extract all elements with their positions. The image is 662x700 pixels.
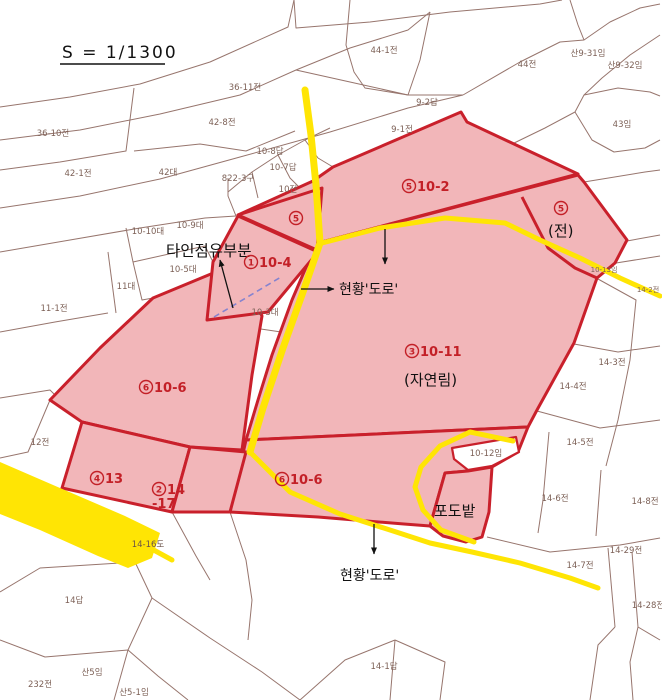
lot-label: 36-10전 bbox=[37, 128, 70, 139]
scale-label: S = 1/1300 bbox=[62, 43, 178, 63]
lot-label: 232전 bbox=[28, 679, 52, 690]
lot-label: 10-13임 bbox=[591, 266, 618, 274]
highlight-label-10-6-upper: 6 10-6 bbox=[140, 381, 187, 397]
lot-label: 9-2답 bbox=[416, 97, 438, 108]
lot-label: 12전 bbox=[31, 437, 50, 448]
svg-text:10-4: 10-4 bbox=[259, 256, 292, 271]
occupied-label: 타인점유부분 bbox=[166, 242, 252, 260]
lot-label: 14-16도 bbox=[132, 540, 165, 550]
lot-label: 822-3구 bbox=[222, 174, 255, 184]
svg-text:6: 6 bbox=[279, 476, 285, 486]
lot-label: 14-6전 bbox=[541, 493, 568, 504]
svg-text:2: 2 bbox=[156, 486, 162, 496]
natural-forest-label: (자연림) bbox=[404, 371, 457, 389]
lot-label: 10-5대 bbox=[169, 265, 196, 275]
lot-label: 43임 bbox=[613, 119, 632, 130]
lot-label: 44전 bbox=[518, 59, 537, 70]
lot-label: 14-4전 bbox=[559, 381, 586, 392]
vineyard-label: 포도밭 bbox=[434, 502, 476, 520]
highlight-label-10-2: 5 10-2 bbox=[403, 180, 450, 196]
cadastral-map: S = 1/1300 타인점유부분 현황'도로' 현황'도로' (자연림) (전… bbox=[0, 0, 662, 700]
highlight-label-10-4: 1 10-4 bbox=[245, 256, 292, 272]
svg-text:5: 5 bbox=[293, 215, 299, 225]
highlight-parcel-layer bbox=[50, 112, 627, 542]
lot-label: 42-8전 bbox=[208, 117, 235, 128]
lot-label: 14-3전 bbox=[598, 357, 625, 368]
svg-text:10-2: 10-2 bbox=[417, 180, 450, 195]
svg-text:3: 3 bbox=[409, 348, 415, 358]
svg-text:10-6: 10-6 bbox=[290, 473, 323, 488]
lot-label: 10-12임 bbox=[470, 448, 503, 459]
lot-label: 9-1전 bbox=[391, 124, 413, 135]
svg-text:1: 1 bbox=[248, 259, 254, 269]
svg-text:-17: -17 bbox=[152, 497, 176, 512]
svg-text:5: 5 bbox=[406, 183, 412, 193]
svg-text:10-11: 10-11 bbox=[420, 345, 462, 360]
highlight-label-13: 4 13 bbox=[91, 472, 124, 488]
lot-label: 14-8전 bbox=[631, 496, 658, 507]
lot-label: 10-7답 bbox=[269, 162, 296, 173]
highlight-label-10-6-lower: 6 10-6 bbox=[276, 473, 323, 489]
lot-label: 44-1전 bbox=[370, 45, 397, 56]
field-label: (전) bbox=[548, 222, 574, 240]
lot-label: 10-9대 bbox=[176, 221, 203, 231]
lot-label: 10-8답 bbox=[256, 146, 283, 157]
lot-label: 36-11전 bbox=[229, 82, 262, 93]
lot-label: 산9-32임 bbox=[608, 60, 643, 71]
lot-label: 14-1답 bbox=[370, 661, 397, 672]
svg-text:14: 14 bbox=[167, 483, 185, 498]
lot-label: 10-3대 bbox=[251, 308, 278, 318]
road-status-label-bottom: 현황'도로' bbox=[340, 568, 399, 584]
lot-label: 42대 bbox=[159, 168, 178, 178]
lot-label: 42-1전 bbox=[64, 168, 91, 179]
svg-text:13: 13 bbox=[105, 472, 123, 487]
lot-label: 14-29전 bbox=[610, 545, 643, 556]
lot-label: 14답 bbox=[65, 595, 84, 606]
lot-label: 14-7전 bbox=[566, 560, 593, 571]
lot-label: 산5-1임 bbox=[119, 687, 149, 698]
lot-label: 10전 bbox=[279, 184, 298, 195]
lot-label: 14-5전 bbox=[566, 437, 593, 448]
svg-text:5: 5 bbox=[558, 205, 564, 215]
lot-label: 11-1전 bbox=[40, 303, 67, 314]
lot-label: 산9-31임 bbox=[571, 48, 606, 59]
lot-label: 10-10대 bbox=[132, 227, 165, 237]
map-canvas: S = 1/1300 타인점유부분 현황'도로' 현황'도로' (자연림) (전… bbox=[0, 0, 662, 700]
svg-text:4: 4 bbox=[94, 475, 100, 485]
lot-label: 14-2전 bbox=[637, 285, 659, 294]
svg-text:10-6: 10-6 bbox=[154, 381, 187, 396]
scale-label-group: S = 1/1300 bbox=[60, 43, 178, 64]
lot-label: 11대 bbox=[117, 282, 136, 292]
svg-text:6: 6 bbox=[143, 384, 149, 394]
road-status-label-top: 현황'도로' bbox=[339, 282, 398, 298]
highlight-label-10-11: 3 10-11 bbox=[406, 345, 462, 361]
lot-label: 산5임 bbox=[81, 667, 102, 678]
lot-label: 14-28전 bbox=[632, 600, 662, 611]
